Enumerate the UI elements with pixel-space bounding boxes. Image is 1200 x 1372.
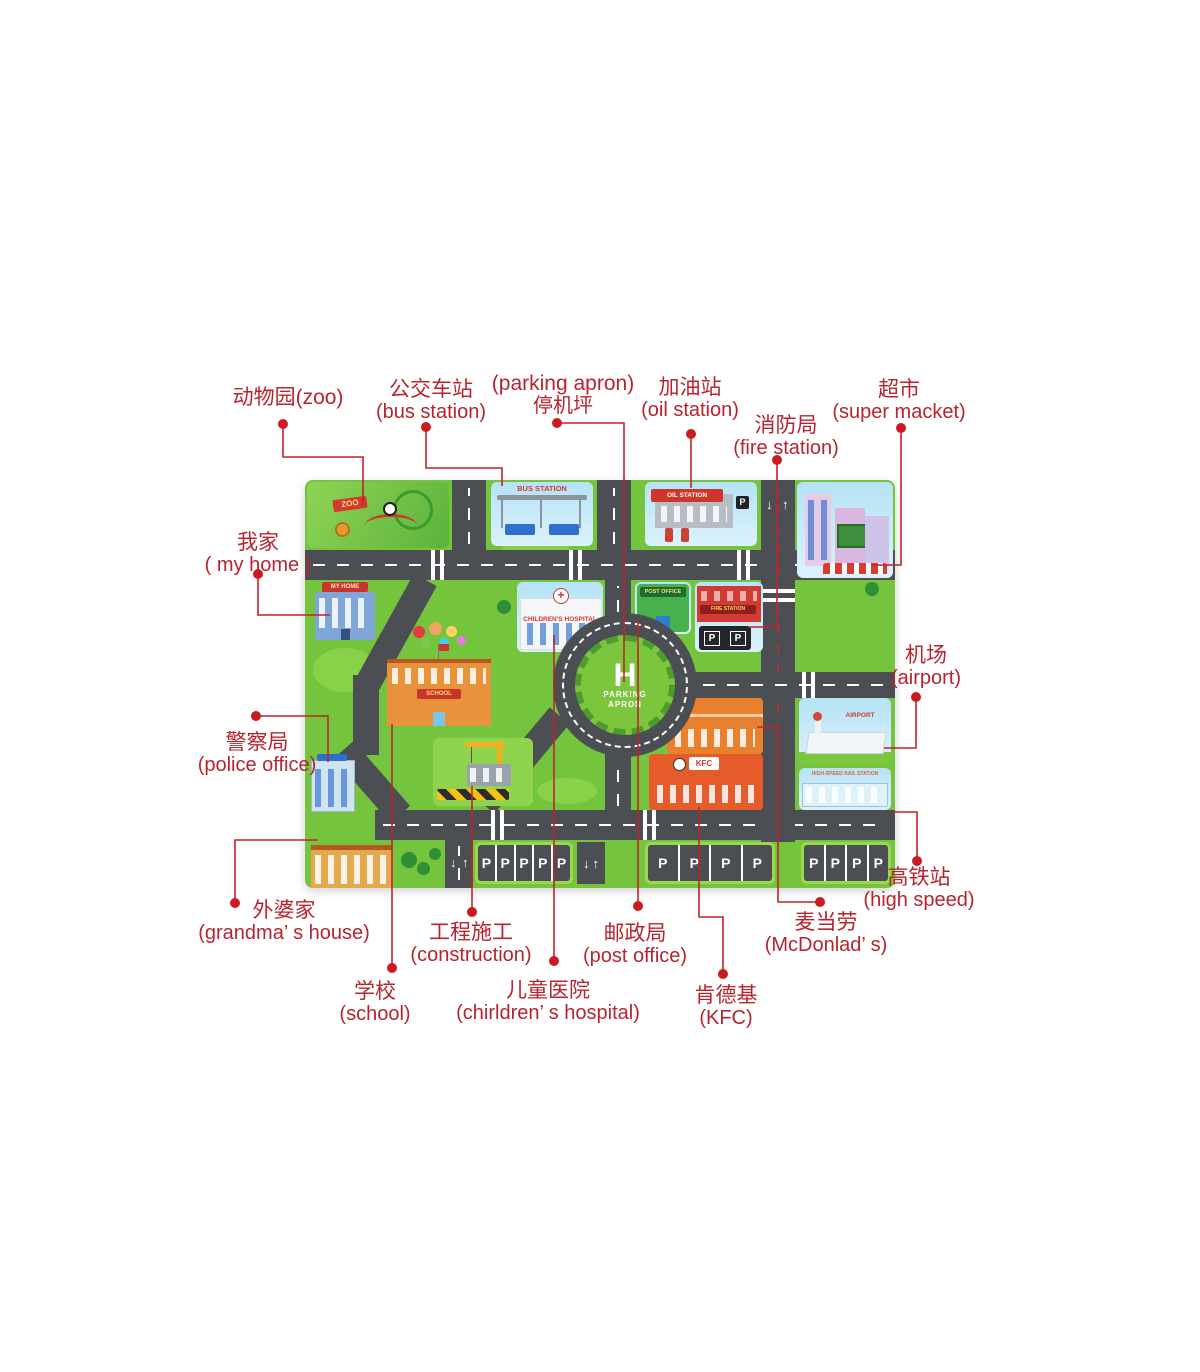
school-scene: SCHOOL xyxy=(383,626,495,726)
callout-parking-apron: (parking apron) 停机坪 xyxy=(492,372,634,418)
windows xyxy=(675,729,755,747)
tree xyxy=(429,848,441,860)
callout-mcdonalds: 麦当劳 (McDonlad’ s) xyxy=(765,911,888,957)
callout-zoo: 动物园(zoo) xyxy=(233,386,344,409)
callout-mcdonalds-line1: 麦当劳 xyxy=(765,911,888,934)
windows xyxy=(470,768,508,782)
supermarket-scene xyxy=(797,482,893,578)
callout-grandma-house-line2: (grandma’ s house) xyxy=(198,922,370,945)
callout-school-line2: (school) xyxy=(339,1003,410,1026)
callout-high-speed: 高铁站 (high speed) xyxy=(863,866,974,912)
roller-coaster xyxy=(365,514,417,537)
callout-my-home-line1: 我家 xyxy=(205,531,312,554)
callout-zoo-line1: 动物园(zoo) xyxy=(233,386,344,409)
callout-parking-apron-line2: 停机坪 xyxy=(492,395,634,418)
bus-shelter-post xyxy=(579,500,581,528)
parking-row-middle: PPPP xyxy=(645,842,775,884)
grandma-house-scene xyxy=(311,840,393,884)
callout-my-home: 我家 ( my home ) xyxy=(205,531,312,577)
oil-station-scene: OIL STATION P xyxy=(645,482,757,546)
callout-supermarket-line2: (super macket) xyxy=(832,401,965,424)
callout-bus-station-line2: (bus station) xyxy=(376,401,486,424)
callout-oil-station-line2: (oil station) xyxy=(641,399,739,422)
police-sign xyxy=(317,754,347,761)
airport-scene: AIRPORT xyxy=(799,698,891,764)
tree xyxy=(417,862,430,875)
crosswalk xyxy=(569,550,587,580)
parking-space-letter: P xyxy=(730,631,747,646)
grandma-house-building xyxy=(311,845,393,888)
balloon xyxy=(429,622,442,635)
fire-station-sign: FIRE STATION xyxy=(700,605,756,614)
parking-sign: P xyxy=(736,496,749,509)
bus-shelter-post xyxy=(501,500,503,528)
kfc-building: KFC xyxy=(649,754,763,810)
roundabout: H PARKING APRON xyxy=(553,613,697,757)
crosswalk xyxy=(802,672,818,698)
callout-grandma-house: 外婆家 (grandma’ s house) xyxy=(198,899,370,945)
road-arrow-up: ↑ xyxy=(782,498,789,512)
windows xyxy=(315,855,389,884)
bus-station-sign: BUS STATION xyxy=(491,484,593,493)
parking-space: P xyxy=(495,845,514,881)
lion xyxy=(335,522,350,537)
windows xyxy=(315,769,351,807)
mall-tower xyxy=(805,494,831,566)
callout-parking-apron-line1: (parking apron) xyxy=(492,372,634,395)
parking-space: P xyxy=(678,845,710,881)
callout-bus-station: 公交车站 (bus station) xyxy=(376,378,486,424)
helipad-parking-apron: H PARKING APRON xyxy=(575,635,675,735)
door xyxy=(433,712,445,726)
bus-shelter-roof xyxy=(497,495,587,500)
parking-space: P xyxy=(648,845,678,881)
balloon xyxy=(421,638,431,648)
road-left-vertical xyxy=(353,675,379,755)
road-vertical-zoo-bus xyxy=(452,480,486,552)
balloon xyxy=(446,626,457,637)
school-building: SCHOOL xyxy=(387,659,491,726)
my-home-building xyxy=(315,592,375,640)
callout-high-speed-line2: (high speed) xyxy=(863,889,974,912)
parking-space: P xyxy=(478,845,495,881)
construction-scene xyxy=(433,738,533,806)
callout-my-home-line2: ( my home ) xyxy=(205,554,312,577)
construction-barrier xyxy=(437,789,509,800)
parking-space: P xyxy=(514,845,533,881)
parking-space: P xyxy=(741,845,773,881)
callout-airport-line2: (airport) xyxy=(891,667,961,690)
road-east-connector xyxy=(695,672,895,698)
fuel-pump xyxy=(681,528,689,542)
balloon xyxy=(413,626,425,638)
callout-childrens-hospital-line2: (chirldren’ s hospital) xyxy=(456,1002,640,1025)
callout-bus-station-line1: 公交车站 xyxy=(376,378,486,401)
helipad-label: PARKING APRON xyxy=(590,690,660,710)
kfc-sign: KFC xyxy=(689,757,719,770)
construction-building xyxy=(467,764,511,786)
callout-police-office: 警察局 (police office) xyxy=(198,731,317,777)
road-south-connector xyxy=(605,752,631,814)
bench xyxy=(549,524,579,535)
road-arrow-down: ↓ xyxy=(583,856,590,871)
fire-station-scene: FIRE STATION P P xyxy=(695,582,763,652)
post-office-sign: POST OFFICE xyxy=(640,587,686,597)
windows xyxy=(319,598,371,628)
balloon xyxy=(457,636,466,645)
parking-space-letter: P xyxy=(704,631,721,646)
callout-supermarket: 超市 (super macket) xyxy=(832,378,965,424)
callout-oil-station: 加油站 (oil station) xyxy=(641,376,739,422)
my-home-scene: MY HOME xyxy=(313,582,377,642)
red-flag xyxy=(439,644,449,651)
callout-kfc: 肯德基 (KFC) xyxy=(695,984,758,1030)
page: 动物园(zoo) 公交车站 (bus station) (parking apr… xyxy=(0,0,1200,1372)
callout-airport: 机场 (airport) xyxy=(891,644,961,690)
road-bottom xyxy=(375,810,895,840)
crosswalk xyxy=(491,810,509,840)
tree xyxy=(497,600,511,614)
callout-fire-station: 消防局 (fire station) xyxy=(733,414,839,460)
callout-school-line1: 学校 xyxy=(339,980,410,1003)
mall-tower xyxy=(865,516,889,566)
panda xyxy=(383,502,397,516)
tree xyxy=(865,582,879,596)
windows xyxy=(392,668,486,684)
bus-station-scene: BUS STATION xyxy=(491,482,593,546)
crosswalk xyxy=(431,550,449,580)
airport-sign: AIRPORT xyxy=(835,712,885,719)
red-cross-icon: + xyxy=(553,588,569,604)
callout-oil-station-line1: 加油站 xyxy=(641,376,739,399)
windows xyxy=(657,785,755,803)
callout-post-office: 邮政局 (post office) xyxy=(583,922,687,968)
police-office-scene xyxy=(311,752,353,810)
callout-grandma-house-line1: 外婆家 xyxy=(198,899,370,922)
kfc-scene: KFC xyxy=(649,754,763,810)
crosswalk xyxy=(643,810,661,840)
callout-police-office-line2: (police office) xyxy=(198,754,317,777)
windows xyxy=(701,591,757,601)
pillars xyxy=(806,787,884,803)
storefront-awning xyxy=(823,563,887,574)
callout-fire-station-line1: 消防局 xyxy=(733,414,839,437)
callout-construction-line2: (construction) xyxy=(410,944,531,967)
helipad-h-mark: H xyxy=(613,660,636,690)
windows xyxy=(808,500,828,560)
crosswalk xyxy=(737,550,755,580)
colonel-figure xyxy=(673,758,686,771)
callout-supermarket-line1: 超市 xyxy=(832,378,965,401)
callout-post-office-line1: 邮政局 xyxy=(583,922,687,945)
tree xyxy=(401,852,417,868)
grass-patch xyxy=(537,778,597,804)
parking-row-left: PPPPP xyxy=(475,842,573,884)
road-arrow-down: ↓ xyxy=(450,856,457,870)
windows xyxy=(661,506,727,522)
callout-police-office-line1: 警察局 xyxy=(198,731,317,754)
bench xyxy=(505,524,535,535)
road-arrow-up: ↑ xyxy=(462,856,469,870)
crosswalk xyxy=(761,588,795,602)
billboard xyxy=(837,524,867,548)
city-play-mat: ↓ ↑ ↓ ↑ H PARKING APRON ZOO BUS STATION xyxy=(305,480,895,888)
road-vertical-right xyxy=(761,480,795,842)
callout-fire-station-line2: (fire station) xyxy=(733,437,839,460)
callout-childrens-hospital-line1: 儿童医院 xyxy=(456,979,640,1002)
parking-space: P xyxy=(532,845,551,881)
zoo-scene: ZOO xyxy=(307,482,449,548)
tower-beacon xyxy=(813,712,822,721)
parking-space: P xyxy=(824,845,846,881)
crane-cable xyxy=(471,747,472,763)
callout-airport-line1: 机场 xyxy=(891,644,961,667)
callout-school: 学校 (school) xyxy=(339,980,410,1026)
road-arrow-down: ↓ xyxy=(766,498,773,512)
high-speed-rail-sign: HIGH-SPEED RAIL STATION xyxy=(799,771,891,777)
fuel-pump xyxy=(665,528,673,542)
road-vertical-bus-oil xyxy=(597,480,631,552)
oil-station-sign: OIL STATION xyxy=(651,489,723,502)
bus-shelter-post xyxy=(540,500,542,528)
callout-high-speed-line1: 高铁站 xyxy=(863,866,974,889)
high-speed-rail-scene: HIGH-SPEED RAIL STATION xyxy=(799,768,891,810)
fire-station-building: FIRE STATION xyxy=(697,586,761,622)
callout-kfc-line1: 肯德基 xyxy=(695,984,758,1007)
parking-lane-arrows: ↓ ↑ xyxy=(577,842,605,884)
callout-mcdonalds-line2: (McDonlad’ s) xyxy=(765,934,888,957)
parking-space: P xyxy=(709,845,741,881)
door xyxy=(341,629,350,640)
zoo-sign: ZOO xyxy=(332,496,367,513)
callout-childrens-hospital: 儿童医院 (chirldren’ s hospital) xyxy=(456,979,640,1025)
school-sign: SCHOOL xyxy=(417,689,461,699)
station-building xyxy=(802,783,888,807)
callout-construction-line1: 工程施工 xyxy=(410,921,531,944)
parking-space: P xyxy=(551,845,570,881)
police-building xyxy=(311,760,355,812)
parking-space: P xyxy=(804,845,824,881)
my-home-sign: MY HOME xyxy=(322,582,368,592)
callout-construction: 工程施工 (construction) xyxy=(410,921,531,967)
callout-kfc-line2: (KFC) xyxy=(695,1007,758,1030)
road-arrow-up: ↑ xyxy=(593,856,600,871)
callout-post-office-line2: (post office) xyxy=(583,945,687,968)
fire-station-parking-lot: P P xyxy=(699,626,751,650)
